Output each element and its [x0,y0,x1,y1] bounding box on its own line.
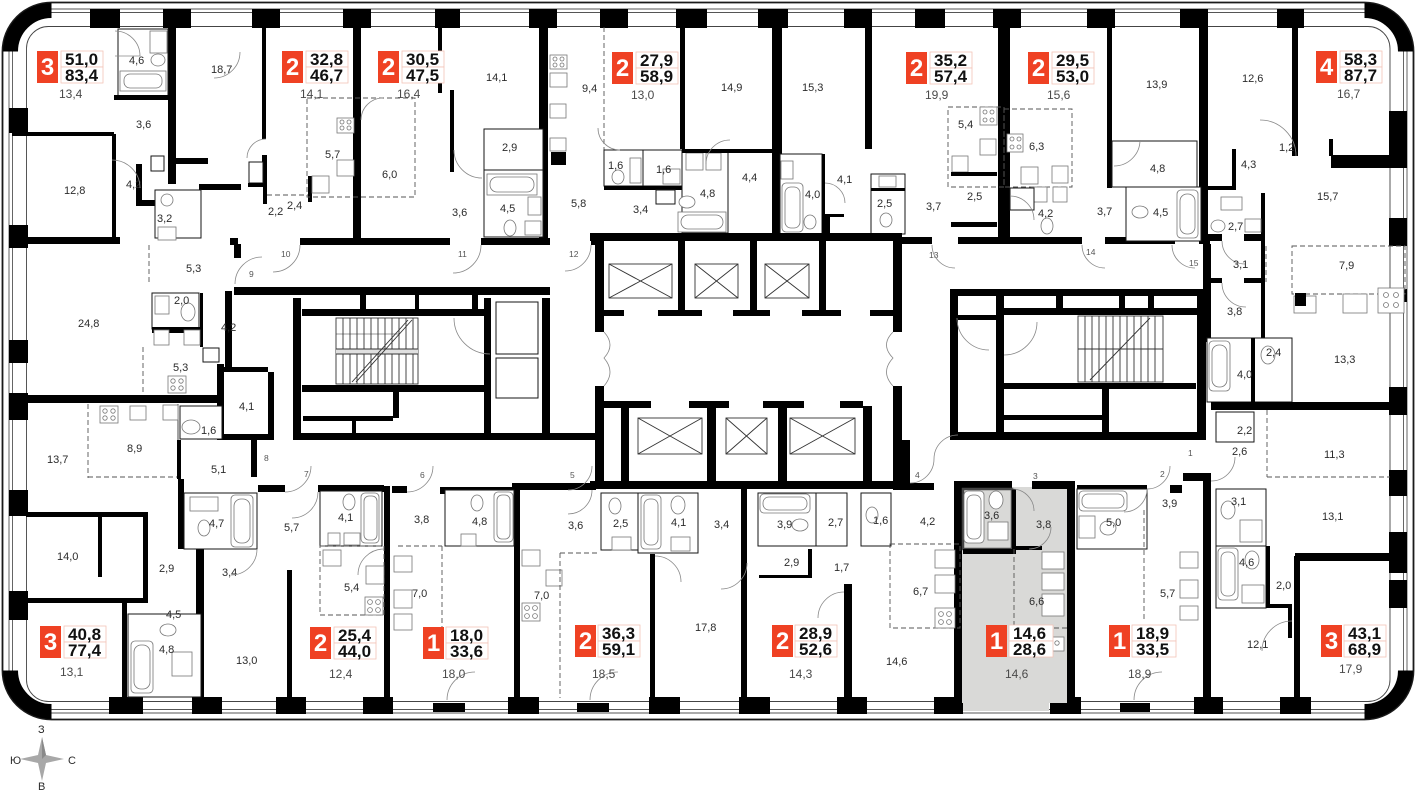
svg-text:2,0: 2,0 [174,295,189,307]
svg-text:4,6: 4,6 [129,55,144,67]
svg-text:4: 4 [1320,54,1334,81]
svg-text:11,3: 11,3 [1324,449,1345,461]
svg-text:17,9: 17,9 [1339,662,1363,676]
svg-text:1,2: 1,2 [1279,142,1294,154]
svg-text:4,1: 4,1 [671,517,686,529]
svg-text:2,9: 2,9 [159,563,174,575]
svg-text:14,1: 14,1 [486,72,507,84]
svg-text:4,0: 4,0 [1237,369,1252,381]
svg-text:58,9: 58,9 [640,67,673,86]
svg-text:2: 2 [286,54,299,81]
svg-text:2,4: 2,4 [1266,347,1281,359]
svg-text:53,0: 53,0 [1056,67,1089,86]
svg-text:6: 6 [420,470,425,480]
svg-text:12: 12 [569,249,579,259]
svg-text:1: 1 [990,628,1003,655]
svg-text:14,3: 14,3 [789,667,813,681]
svg-text:87,7: 87,7 [1344,66,1377,85]
svg-text:19,9: 19,9 [925,88,949,102]
svg-text:18,9: 18,9 [1128,667,1152,681]
svg-text:77,4: 77,4 [68,641,102,660]
svg-text:5,8: 5,8 [571,198,586,210]
svg-text:44,0: 44,0 [338,642,371,661]
svg-text:7,9: 7,9 [1339,260,1354,272]
svg-text:24,8: 24,8 [78,318,99,330]
svg-text:2,4: 2,4 [287,200,302,212]
svg-text:5,3: 5,3 [173,362,188,374]
svg-text:18,0: 18,0 [442,667,466,681]
svg-text:6,6: 6,6 [1029,596,1044,608]
svg-text:14,0: 14,0 [57,551,78,563]
svg-text:3,6: 3,6 [136,119,151,131]
svg-text:15,7: 15,7 [1317,191,1338,203]
svg-text:2,9: 2,9 [502,142,517,154]
svg-text:2,6: 2,6 [1232,446,1247,458]
svg-text:1,6: 1,6 [608,160,623,172]
svg-text:3: 3 [1033,471,1038,481]
svg-text:3,6: 3,6 [568,520,583,532]
svg-text:7,0: 7,0 [412,588,427,600]
svg-text:4,5: 4,5 [500,203,515,215]
svg-text:6,3: 6,3 [1029,141,1044,153]
svg-text:59,1: 59,1 [602,640,635,659]
svg-text:4,3: 4,3 [1241,159,1256,171]
svg-text:46,7: 46,7 [310,66,343,85]
svg-text:3,7: 3,7 [926,201,941,213]
svg-text:6,0: 6,0 [382,169,397,181]
svg-text:3,8: 3,8 [414,514,429,526]
svg-text:2,2: 2,2 [1237,425,1252,437]
svg-text:15,6: 15,6 [1047,88,1071,102]
svg-text:4,4: 4,4 [742,172,757,184]
svg-text:13,1: 13,1 [60,665,84,679]
svg-text:3: 3 [1325,628,1338,655]
svg-text:2: 2 [616,55,629,82]
svg-text:С: С [68,755,76,767]
svg-text:68,9: 68,9 [1348,640,1381,659]
svg-text:10: 10 [281,249,291,259]
svg-text:4,0: 4,0 [805,189,820,201]
svg-text:33,6: 33,6 [450,642,483,661]
svg-text:4,2: 4,2 [221,322,236,334]
svg-text:1,6: 1,6 [201,425,216,437]
svg-text:33,5: 33,5 [1136,640,1169,659]
svg-text:Ю: Ю [10,755,21,767]
svg-text:16,7: 16,7 [1337,87,1361,101]
svg-text:52,6: 52,6 [799,640,832,659]
svg-text:5,3: 5,3 [186,263,201,275]
svg-text:4,7: 4,7 [209,518,224,530]
svg-text:13,9: 13,9 [1146,79,1167,91]
svg-text:3,1: 3,1 [1231,496,1246,508]
svg-text:5: 5 [570,470,575,480]
svg-text:3,7: 3,7 [1097,206,1112,218]
svg-text:2,2: 2,2 [268,206,283,218]
svg-text:4,1: 4,1 [338,512,353,524]
svg-text:12,1: 12,1 [1247,639,1268,651]
svg-text:14,6: 14,6 [886,656,907,668]
svg-text:5,4: 5,4 [958,119,973,131]
svg-text:3,9: 3,9 [1162,498,1177,510]
svg-text:47,5: 47,5 [406,66,439,85]
svg-text:3: 3 [41,54,54,81]
svg-text:28,6: 28,6 [1013,640,1046,659]
svg-text:83,4: 83,4 [65,66,99,85]
svg-text:4,8: 4,8 [1150,163,1165,175]
svg-text:15,3: 15,3 [802,82,823,94]
svg-text:13,3: 13,3 [1334,354,1355,366]
svg-text:2: 2 [579,628,592,655]
svg-text:4,5: 4,5 [1153,207,1168,219]
svg-text:13,0: 13,0 [236,655,257,667]
svg-text:4,8: 4,8 [159,644,174,656]
svg-text:2: 2 [314,630,327,657]
svg-text:5,4: 5,4 [344,582,359,594]
svg-text:17,8: 17,8 [695,622,716,634]
svg-text:8: 8 [264,453,269,463]
svg-text:5,0: 5,0 [1106,517,1121,529]
svg-text:9,4: 9,4 [582,83,597,95]
svg-text:2,5: 2,5 [877,198,892,210]
svg-text:5,1: 5,1 [211,464,226,476]
svg-text:8,9: 8,9 [127,443,142,455]
svg-text:2,7: 2,7 [1228,221,1243,233]
svg-text:13,1: 13,1 [1322,511,1343,523]
svg-text:3,4: 3,4 [714,519,729,531]
svg-text:3,6: 3,6 [452,207,467,219]
svg-text:3,2: 3,2 [157,213,172,225]
svg-text:1: 1 [1113,628,1126,655]
svg-text:1,7: 1,7 [834,562,849,574]
svg-text:3,9: 3,9 [777,519,792,531]
svg-text:18,5: 18,5 [592,667,616,681]
svg-text:4,2: 4,2 [1038,208,1053,220]
svg-text:57,4: 57,4 [934,67,968,86]
svg-text:4,1: 4,1 [239,401,254,413]
svg-text:4: 4 [915,470,920,480]
svg-text:2: 2 [910,55,923,82]
svg-text:3,8: 3,8 [1036,519,1051,531]
svg-text:4,8: 4,8 [700,188,715,200]
svg-text:6,7: 6,7 [913,586,928,598]
svg-text:З: З [38,724,45,736]
svg-text:14,1: 14,1 [300,87,324,101]
svg-text:2: 2 [382,54,395,81]
svg-text:9: 9 [249,269,254,279]
svg-text:15: 15 [1189,258,1199,268]
svg-text:3,6: 3,6 [984,510,999,522]
svg-text:13,4: 13,4 [59,87,83,101]
svg-text:3,8: 3,8 [1227,306,1242,318]
svg-text:1,6: 1,6 [873,515,888,527]
svg-text:7,0: 7,0 [534,590,549,602]
svg-text:14: 14 [1086,247,1096,257]
svg-text:12,6: 12,6 [1242,73,1263,85]
svg-text:5,7: 5,7 [284,522,299,534]
svg-text:5,7: 5,7 [325,149,340,161]
svg-text:2,5: 2,5 [613,518,628,530]
svg-text:4,2: 4,2 [920,516,935,528]
svg-text:12,8: 12,8 [64,185,85,197]
svg-text:3,1: 3,1 [1233,259,1248,271]
svg-text:2: 2 [776,628,789,655]
svg-text:2,7: 2,7 [828,517,843,529]
svg-text:18,7: 18,7 [211,64,232,76]
svg-text:3,4: 3,4 [633,204,648,216]
svg-text:2,5: 2,5 [967,191,982,203]
svg-text:16,4: 16,4 [397,87,421,101]
svg-text:В: В [38,781,45,793]
svg-text:4,1: 4,1 [837,174,852,186]
svg-text:11: 11 [458,249,467,259]
svg-text:5,7: 5,7 [1160,588,1175,600]
svg-text:1: 1 [1188,448,1193,458]
svg-text:12,4: 12,4 [329,667,353,681]
svg-text:14,6: 14,6 [1005,667,1029,681]
svg-text:2: 2 [1160,469,1165,479]
svg-text:4,8: 4,8 [472,516,487,528]
svg-text:2,0: 2,0 [1276,580,1291,592]
svg-text:1: 1 [427,630,440,657]
svg-text:4,5: 4,5 [166,609,181,621]
svg-text:3,4: 3,4 [222,567,237,579]
svg-text:2,9: 2,9 [784,557,799,569]
svg-text:13,0: 13,0 [631,88,655,102]
svg-text:2: 2 [1032,55,1045,82]
svg-text:4,6: 4,6 [1239,557,1254,569]
svg-text:14,9: 14,9 [721,82,742,94]
svg-text:3: 3 [44,629,57,656]
svg-text:1,6: 1,6 [656,164,671,176]
svg-text:13,7: 13,7 [47,454,68,466]
